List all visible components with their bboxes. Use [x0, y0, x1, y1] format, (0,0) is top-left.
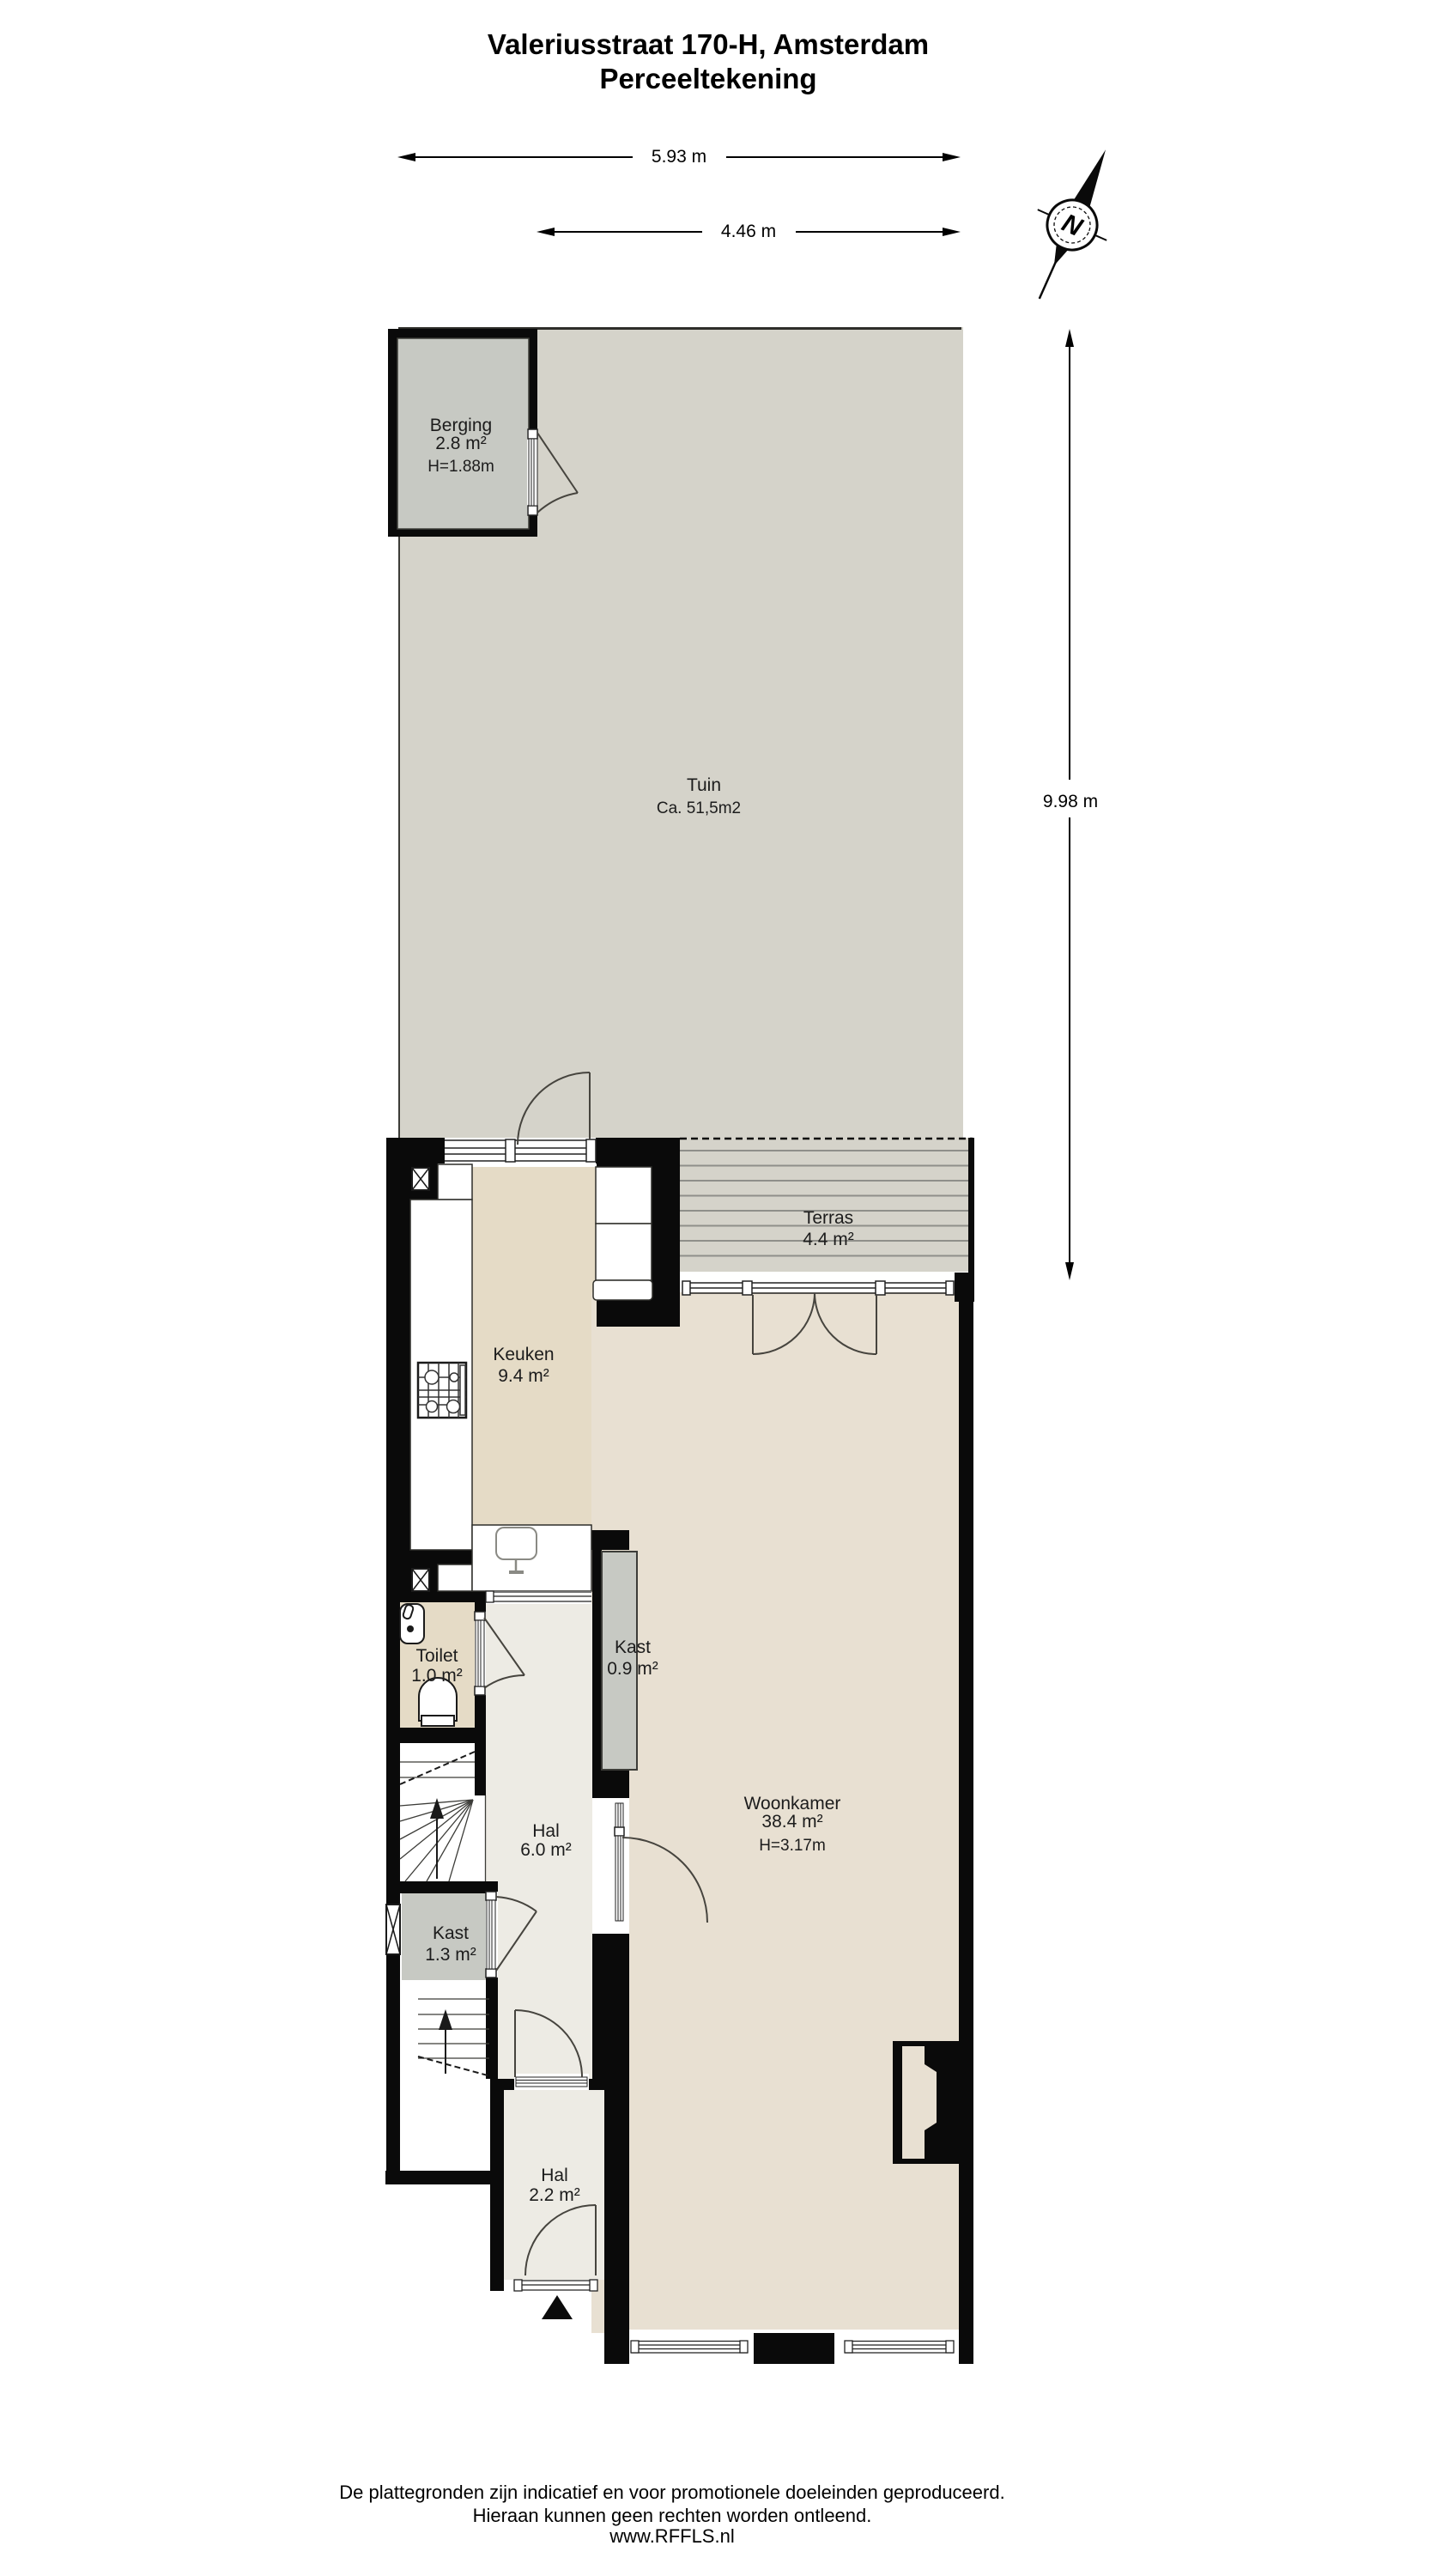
svg-text:Berging: Berging [430, 416, 492, 435]
svg-text:Woonkamer: Woonkamer [744, 1794, 841, 1814]
svg-text:9.98 m: 9.98 m [1043, 792, 1098, 811]
svg-text:2.2 m²: 2.2 m² [529, 2185, 580, 2205]
svg-text:H=1.88m: H=1.88m [427, 458, 494, 476]
svg-text:Kast: Kast [615, 1637, 651, 1657]
svg-text:www.RFFLS.nl: www.RFFLS.nl [609, 2525, 734, 2547]
svg-text:4.46 m: 4.46 m [721, 222, 776, 241]
svg-text:0.9 m²: 0.9 m² [607, 1659, 658, 1679]
svg-text:5.93 m: 5.93 m [652, 147, 706, 167]
svg-text:Hieraan kunnen geen rechten wo: Hieraan kunnen geen rechten worden ontle… [473, 2505, 872, 2526]
svg-text:1.3 m²: 1.3 m² [425, 1945, 476, 1965]
svg-text:Tuin: Tuin [687, 775, 721, 795]
svg-text:Hal: Hal [532, 1821, 560, 1841]
svg-text:6.0 m²: 6.0 m² [520, 1840, 572, 1860]
svg-text:4.4 m²: 4.4 m² [803, 1230, 854, 1249]
svg-text:Toilet: Toilet [415, 1646, 458, 1666]
svg-text:Valeriusstraat 170-H, Amsterda: Valeriusstraat 170-H, Amsterdam [488, 28, 929, 60]
svg-text:9.4 m²: 9.4 m² [498, 1366, 549, 1386]
svg-text:38.4 m²: 38.4 m² [761, 1812, 822, 1832]
svg-text:1.0 m²: 1.0 m² [411, 1666, 463, 1686]
svg-text:Hal: Hal [541, 2166, 568, 2185]
svg-text:2.8 m²: 2.8 m² [435, 434, 487, 453]
svg-text:Terras: Terras [803, 1208, 853, 1228]
svg-text:H=3.17m: H=3.17m [759, 1837, 826, 1855]
svg-text:Ca. 51,5m2: Ca. 51,5m2 [657, 799, 741, 817]
svg-text:Keuken: Keuken [493, 1345, 554, 1364]
svg-text:Kast: Kast [433, 1923, 469, 1943]
svg-text:De plattegronden zijn indicati: De plattegronden zijn indicatief en voor… [339, 2482, 1004, 2503]
svg-text:Perceeltekening: Perceeltekening [599, 63, 816, 94]
